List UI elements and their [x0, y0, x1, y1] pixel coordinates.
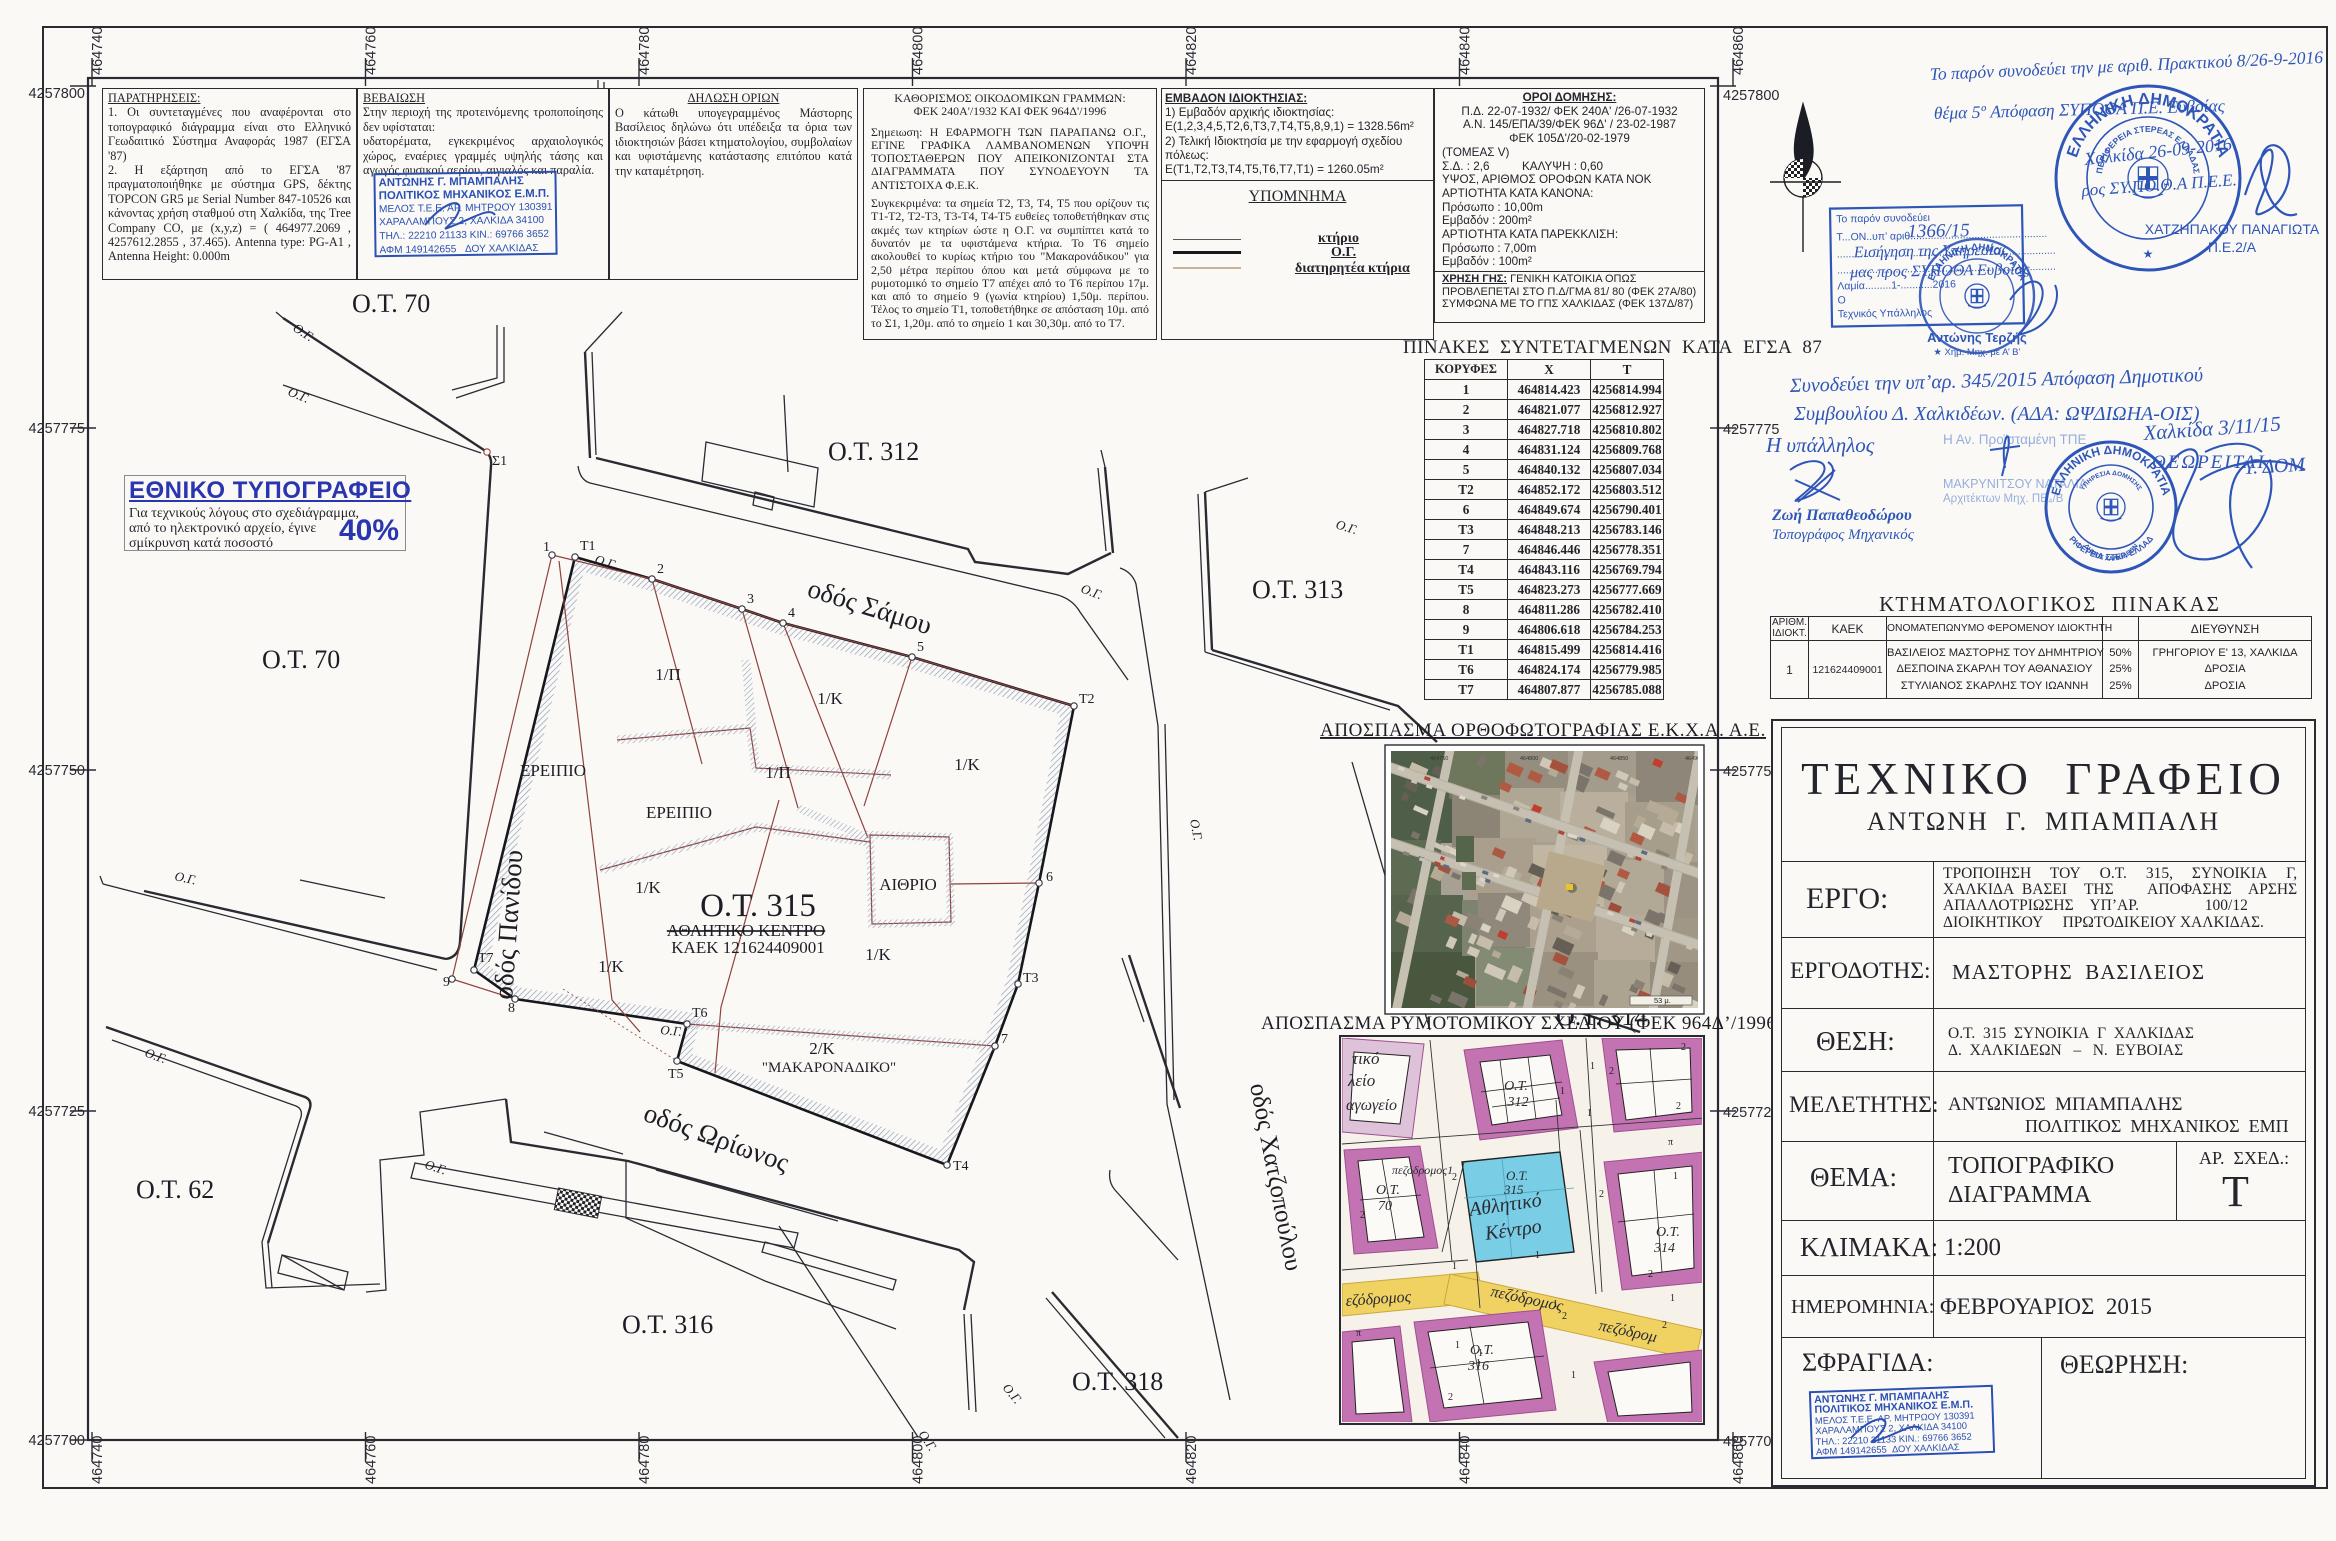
- svg-text:5: 5: [917, 640, 924, 655]
- svg-text:4257775: 4257775: [29, 421, 85, 437]
- svg-text:2: 2: [1452, 1172, 1457, 1183]
- svg-text:Συνοδεύει την υπ’αρ. 345/201: Συνοδεύει την υπ’αρ. 345/2015 Απόφαση Δη…: [1789, 364, 2204, 397]
- svg-text:Ο.Τ. 313: Ο.Τ. 313: [1252, 575, 1343, 604]
- svg-text:Ο.Γ.: Ο.Γ.: [423, 1157, 448, 1178]
- svg-text:Ο.Γ.: Ο.Γ.: [660, 1022, 683, 1039]
- svg-text:1/Π: 1/Π: [655, 665, 681, 684]
- svg-text:2: 2: [1562, 1311, 1567, 1322]
- svg-text:464780: 464780: [637, 1436, 653, 1484]
- svg-text:T4: T4: [953, 1159, 969, 1174]
- svg-text:Ο.Τ.: Ο.Τ.: [1504, 1079, 1528, 1094]
- svg-text:οδός Ωρίωνος: οδός Ωρίωνος: [640, 1097, 794, 1177]
- svg-text:1/Κ: 1/Κ: [954, 755, 980, 774]
- svg-text:T3: T3: [1023, 971, 1039, 986]
- svg-text:464840: 464840: [1458, 27, 1474, 75]
- svg-text:464800: 464800: [911, 27, 927, 75]
- svg-text:Ο.Γ.: Ο.Γ.: [1000, 1380, 1025, 1406]
- svg-text:οδός Χατζοπούλου: οδός Χατζοπούλου: [1244, 1081, 1307, 1273]
- svg-text:★: ★: [2143, 247, 2154, 261]
- svg-text:9: 9: [443, 975, 450, 990]
- svg-text:1: 1: [1452, 1261, 1457, 1272]
- svg-text:Ο: Ο: [1838, 294, 1846, 306]
- svg-text:T2: T2: [1079, 692, 1095, 707]
- svg-text:Τοπογράφος Μηχανικός: Τοπογράφος Μηχανικός: [1772, 527, 1915, 543]
- svg-text:Συμβουλίου Δ. Χαλκιδέων. (ΑΔΑ: Συμβουλίου Δ. Χαλκιδέων. (ΑΔΑ: ΩΨΔΙΩΗΑ-Ο…: [1793, 403, 2200, 425]
- svg-text:π: π: [1356, 1328, 1361, 1339]
- svg-text:1/Π: 1/Π: [765, 763, 791, 782]
- svg-text:Ο.Τ. 62: Ο.Τ. 62: [136, 1175, 214, 1204]
- svg-text:2: 2: [1676, 1101, 1681, 1112]
- svg-text:Ο.Γ.: Ο.Γ.: [173, 868, 197, 887]
- svg-text:1/Κ: 1/Κ: [817, 689, 843, 708]
- svg-text:7: 7: [1001, 1032, 1008, 1047]
- svg-text:ΑΠΟΣΠΑΣΜΑ ΡΥΜΟΤΟΜΙΚΟΥ ΣΧΕΔΙΟ: ΑΠΟΣΠΑΣΜΑ ΡΥΜΟΤΟΜΙΚΟΥ ΣΧΕΔΙΟΥ (ΦΕΚ 964Δ’…: [1261, 1013, 1783, 1034]
- svg-text:Ο.Τ. 312: Ο.Τ. 312: [828, 437, 919, 466]
- svg-text:Ο.Τ. 316: Ο.Τ. 316: [622, 1310, 713, 1339]
- svg-text:1/Κ: 1/Κ: [635, 878, 661, 897]
- svg-text:"ΜΑΚΑΡΟΝΑΔΙΚΟ": "ΜΑΚΑΡΟΝΑΔΙΚΟ": [762, 1060, 896, 1076]
- svg-text:464860: 464860: [1731, 27, 1747, 75]
- svg-text:T1: T1: [580, 539, 596, 554]
- svg-text:2: 2: [1662, 1320, 1667, 1331]
- svg-text:1: 1: [1478, 1348, 1483, 1359]
- svg-text:1: 1: [1673, 1171, 1678, 1182]
- svg-text:464760: 464760: [364, 27, 380, 75]
- svg-text:★ Χημ. Μηχ. με Α’ Β’: ★ Χημ. Μηχ. με Α’ Β’: [1933, 347, 2020, 358]
- svg-text:Ο.Γ.: Ο.Γ.: [286, 384, 312, 406]
- svg-text:464840: 464840: [1458, 1436, 1474, 1484]
- svg-text:4257700: 4257700: [29, 1433, 85, 1449]
- svg-text:2: 2: [1599, 1189, 1604, 1200]
- svg-text:1: 1: [1553, 1299, 1558, 1310]
- svg-text:Σ1: Σ1: [492, 454, 507, 469]
- svg-text:1: 1: [1560, 1086, 1565, 1097]
- svg-text:464760: 464760: [364, 1436, 380, 1484]
- svg-text:πεζόδρομος1: πεζόδρομος1: [1392, 1163, 1453, 1177]
- svg-text:312: 312: [1507, 1095, 1529, 1110]
- svg-text:4257800: 4257800: [1723, 88, 1779, 104]
- svg-text:1: 1: [543, 540, 550, 555]
- svg-text:ΕΡΕΙΠΙΟ: ΕΡΕΙΠΙΟ: [646, 803, 712, 822]
- svg-text:τικό: τικό: [1352, 1049, 1379, 1068]
- svg-text:3: 3: [747, 592, 754, 607]
- svg-text:ΑΙΘΡΙΟ: ΑΙΘΡΙΟ: [879, 875, 937, 894]
- svg-text:1: 1: [1670, 1293, 1675, 1304]
- svg-text:1/Κ: 1/Κ: [865, 945, 891, 964]
- svg-text:ΧΑΤΖΗΠΑΚΟΥ ΠΑΝΑΓΙΩΤΑ: ΧΑΤΖΗΠΑΚΟΥ ΠΑΝΑΓΙΩΤΑ: [2145, 221, 2320, 237]
- svg-text:Ο.Γ.: Ο.Γ.: [1079, 581, 1104, 602]
- svg-text:53 μ.: 53 μ.: [1654, 996, 1671, 1005]
- svg-text:8: 8: [508, 1001, 515, 1016]
- svg-text:ΕΡΕΙΠΙΟ: ΕΡΕΙΠΙΟ: [520, 761, 586, 780]
- svg-text:T5: T5: [668, 1067, 684, 1082]
- svg-text:464850: 464850: [1610, 756, 1628, 762]
- svg-text:Τεχνικός Υπάλληλος: Τεχνικός Υπάλληλος: [1838, 307, 1932, 321]
- svg-text:4: 4: [788, 606, 795, 621]
- svg-text:6: 6: [1046, 870, 1053, 885]
- svg-text:1: 1: [1571, 1370, 1576, 1381]
- svg-text:οδός Σάμου: οδός Σάμου: [804, 573, 935, 640]
- svg-text:Η υπάλληλος: Η υπάλληλος: [1765, 433, 1875, 457]
- svg-text:2: 2: [1609, 1066, 1614, 1077]
- svg-text:Ο.Τ.: Ο.Τ.: [1656, 1225, 1680, 1240]
- svg-text:2: 2: [1681, 1042, 1686, 1053]
- svg-text:1: 1: [1535, 1250, 1540, 1261]
- svg-text:2: 2: [657, 562, 664, 577]
- svg-text:4257725: 4257725: [29, 1104, 85, 1120]
- svg-text:π: π: [1668, 1137, 1673, 1148]
- svg-text:4257750: 4257750: [29, 763, 85, 779]
- svg-text:464800: 464800: [1520, 756, 1538, 762]
- svg-text:Ο.Τ.: Ο.Τ.: [1376, 1183, 1400, 1198]
- svg-text:Ο.Τ.: Ο.Τ.: [1506, 1168, 1528, 1183]
- svg-text:2: 2: [1360, 1210, 1365, 1221]
- svg-text:Η Αν. Προϊσταμένη ΤΠΕ: Η Αν. Προϊσταμένη ΤΠΕ: [1943, 432, 2087, 447]
- svg-text:Ο.Τ. 70: Ο.Τ. 70: [262, 645, 340, 674]
- svg-text:T6: T6: [692, 1006, 708, 1021]
- svg-text:1366/15: 1366/15: [1907, 220, 1970, 242]
- svg-text:Ζωή Παπαθεοδώρου: Ζωή Παπαθεοδώρου: [1771, 507, 1912, 524]
- svg-text:2: 2: [1648, 1269, 1653, 1280]
- svg-text:1/Κ: 1/Κ: [598, 957, 624, 976]
- svg-text:464740: 464740: [90, 27, 106, 75]
- svg-text:Ο.Τ. 315: Ο.Τ. 315: [700, 888, 816, 924]
- svg-text:Αντώνης Τερζής: Αντώνης Τερζής: [1927, 330, 2027, 345]
- svg-text:αγωγείο: αγωγείο: [1346, 1097, 1397, 1114]
- svg-text:Π.Ε.2/Α: Π.Ε.2/Α: [2208, 239, 2257, 255]
- svg-text:2: 2: [1448, 1392, 1453, 1403]
- svg-text:464820: 464820: [1184, 27, 1200, 75]
- svg-text:ΑΠΟΣΠΑΣΜΑ ΟΡΘΟΦΩΤΟΓΡΑΦΙΑΣ Ε.: ΑΠΟΣΠΑΣΜΑ ΟΡΘΟΦΩΤΟΓΡΑΦΙΑΣ Ε.Κ.Χ.Α. Α.Ε.: [1320, 720, 1766, 741]
- svg-text:οδός Πανίδου: οδός Πανίδου: [488, 849, 528, 1001]
- svg-text:70: 70: [1378, 1199, 1392, 1214]
- svg-text:ΥΠΗΡΕΣΙΑ ΔΟΜΗΣΗΣ: ΥΠΗΡΕΣΙΑ ΔΟΜΗΣΗΣ: [2079, 470, 2143, 492]
- svg-text:2/Κ: 2/Κ: [809, 1039, 835, 1058]
- svg-text:Ο.Τ. 318: Ο.Τ. 318: [1072, 1367, 1163, 1396]
- svg-text:1: 1: [1590, 1061, 1595, 1072]
- svg-text:4257800: 4257800: [29, 86, 85, 102]
- svg-text:Ο.Γ.: Ο.Γ.: [1334, 517, 1359, 538]
- svg-text:314: 314: [1653, 1241, 1675, 1256]
- svg-text:464820: 464820: [1184, 1436, 1200, 1484]
- svg-text:Ο.Τ. 70: Ο.Τ. 70: [352, 289, 430, 318]
- svg-text:Το παρόν συνοδεύει την με α: Το παρόν συνοδεύει την με αριθ. Πρακτικο…: [1929, 47, 2323, 84]
- svg-text:464780: 464780: [637, 27, 653, 75]
- svg-text:464750: 464750: [1430, 756, 1448, 762]
- svg-text:1: 1: [1587, 1108, 1592, 1119]
- svg-text:ΚΑΕΚ 121624409001: ΚΑΕΚ 121624409001: [671, 938, 824, 957]
- svg-text:Ο.Γ.: Ο.Γ.: [290, 320, 316, 344]
- svg-text:1: 1: [1476, 1358, 1481, 1369]
- svg-text:Ο.Γ.: Ο.Γ.: [1187, 818, 1206, 842]
- svg-text:1: 1: [1455, 1340, 1460, 1351]
- svg-text:λείο: λείο: [1347, 1071, 1375, 1090]
- svg-text:464740: 464740: [90, 1436, 106, 1484]
